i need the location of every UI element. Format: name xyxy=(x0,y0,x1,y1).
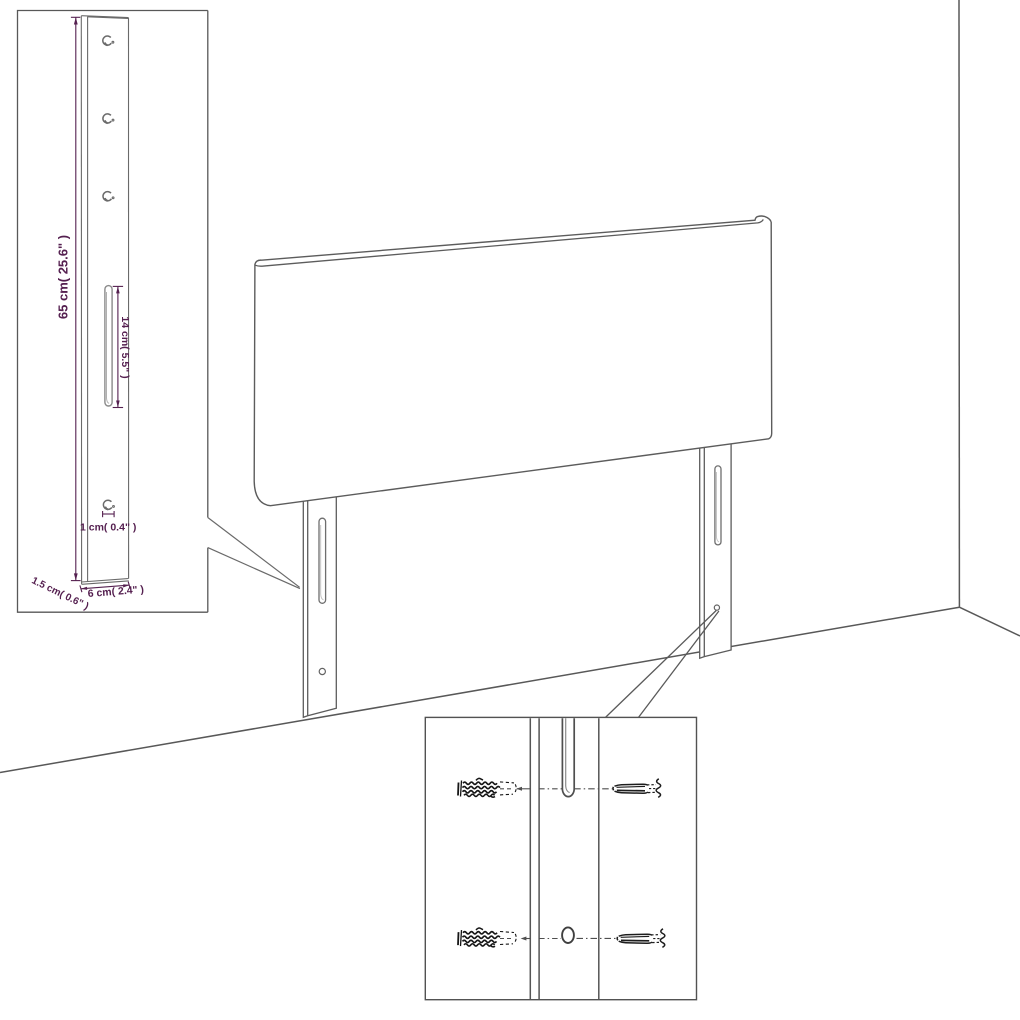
svg-text:1 cm( 0.4" ): 1 cm( 0.4" ) xyxy=(80,522,136,534)
svg-text:65 cm( 25.6" ): 65 cm( 25.6" ) xyxy=(56,235,71,319)
svg-text:14 cm( 5.5" ): 14 cm( 5.5" ) xyxy=(119,316,131,378)
